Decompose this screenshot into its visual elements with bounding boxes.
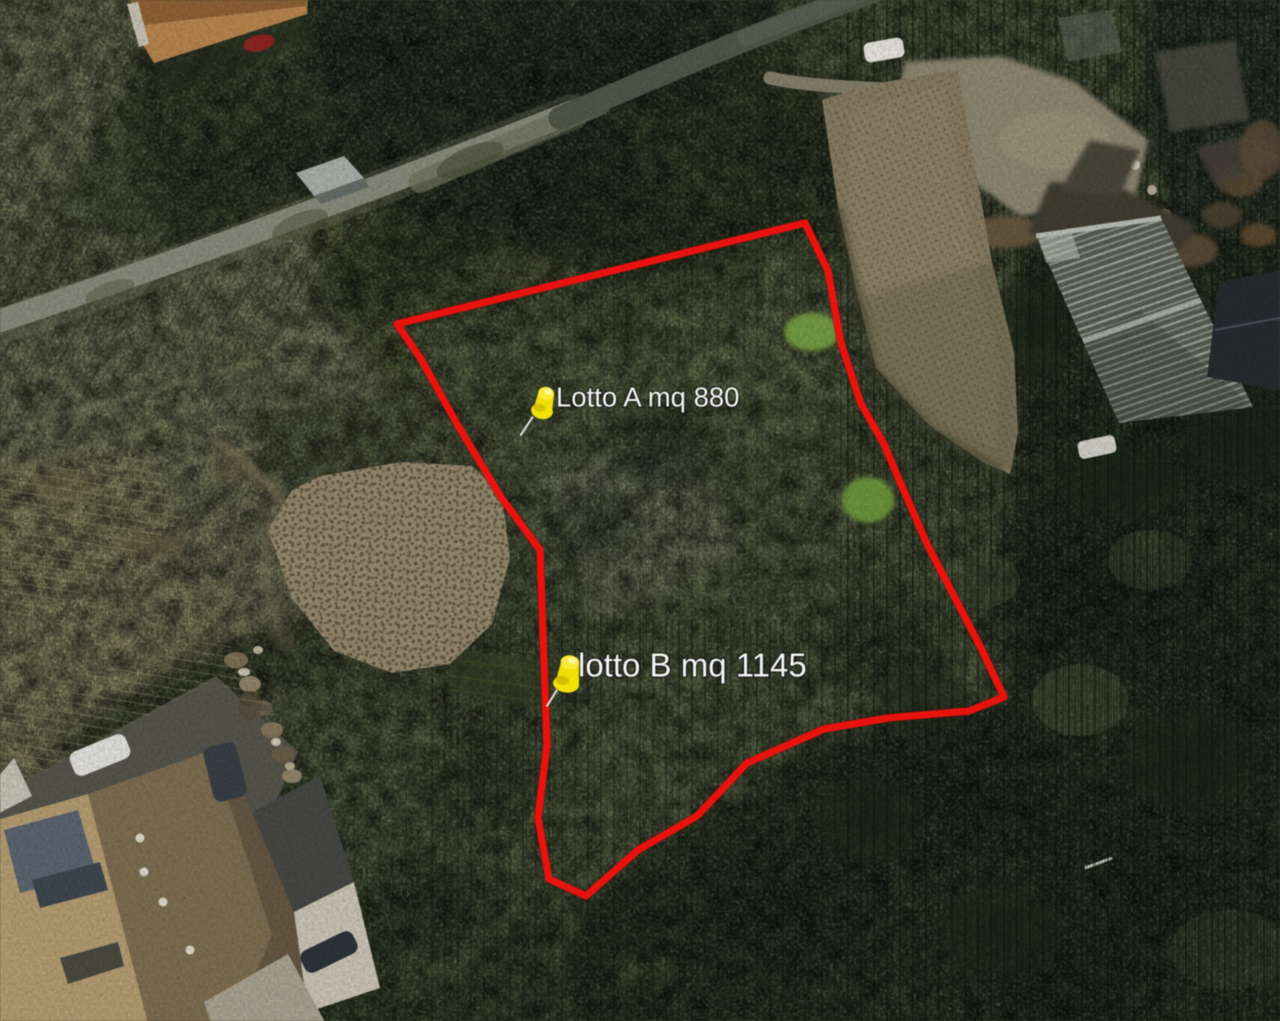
svg-text:lotto B mq 1145: lotto B mq 1145 [578, 647, 807, 684]
svg-text:Lotto A mq 880: Lotto A mq 880 [556, 382, 739, 413]
